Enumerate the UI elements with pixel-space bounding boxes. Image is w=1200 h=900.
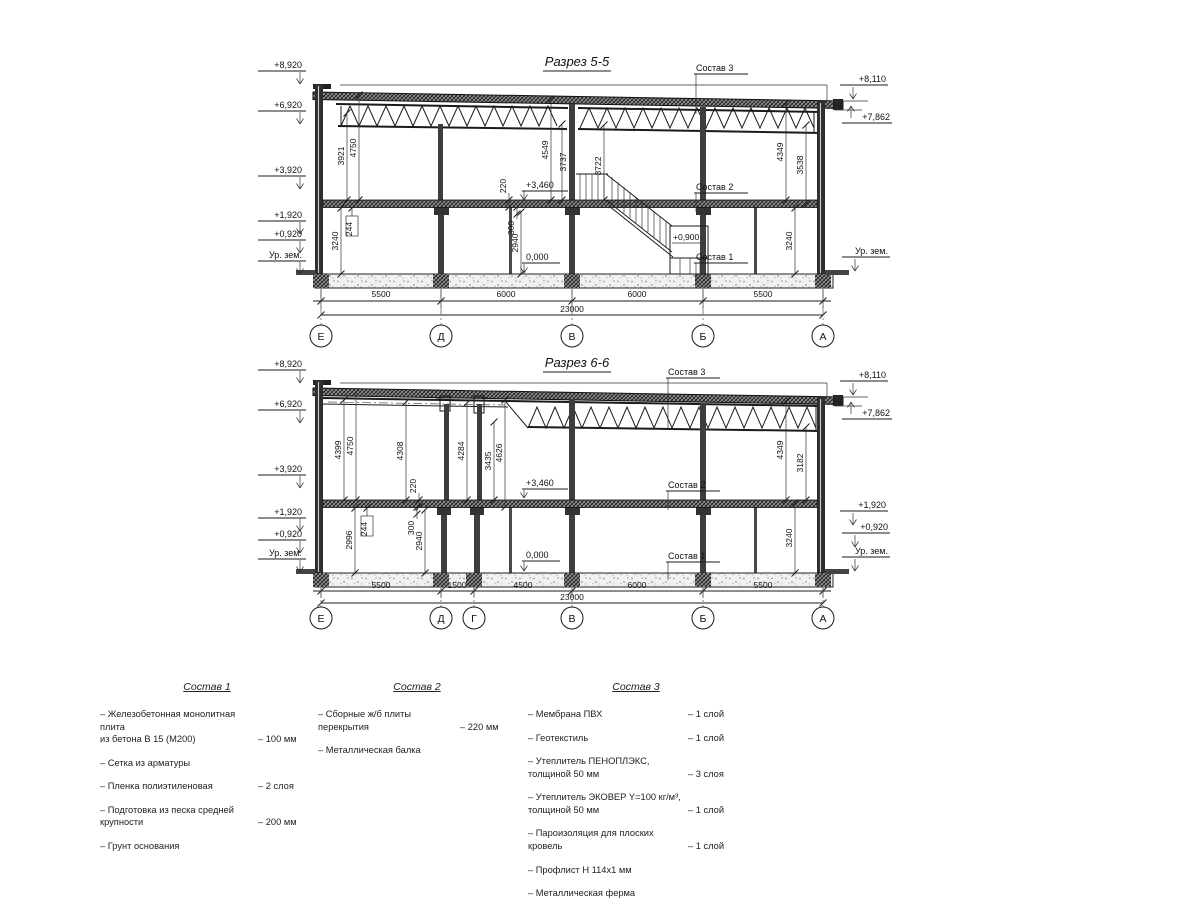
roof-truss-6-6 [505, 401, 822, 431]
axis-bubble: Б [700, 331, 707, 343]
column-axis-d [441, 507, 447, 573]
svg-text:4349: 4349 [775, 440, 785, 459]
column-axis-v [569, 104, 575, 274]
svg-text:220: 220 [408, 479, 418, 493]
svg-text:3240: 3240 [784, 528, 794, 547]
svg-text:3737: 3737 [558, 152, 568, 171]
svg-text:220: 220 [498, 179, 508, 193]
svg-text:4626: 4626 [494, 443, 504, 462]
svg-text:244: 244 [359, 522, 369, 536]
sections-drawing: Разрез 5-5 [0, 0, 1200, 900]
level-3460: +3,460 [521, 478, 569, 498]
roof-truss-5-5 [336, 104, 822, 133]
svg-text:4308: 4308 [395, 441, 405, 460]
svg-text:4284: 4284 [456, 441, 466, 460]
column-axis-d-upper [444, 404, 449, 500]
axis-bubble: В [568, 331, 575, 343]
svg-text:+7,862: +7,862 [862, 112, 890, 122]
svg-text:Состав 3: Состав 3 [696, 63, 733, 73]
elevation-marks-right-5-5: +8,110 +7,862 Ур. зем. [835, 74, 892, 271]
section-5-5-title: Разрез 5-5 [545, 54, 610, 69]
svg-text:6000: 6000 [497, 289, 516, 299]
svg-text:3538: 3538 [795, 155, 805, 174]
axis-bubble: Е [317, 331, 324, 343]
svg-text:Состав 1: Состав 1 [668, 551, 705, 561]
svg-text:4750: 4750 [348, 138, 358, 157]
svg-text:Ур. зем.: Ур. зем. [855, 546, 888, 556]
level-0000: 0,000 [521, 252, 561, 273]
svg-text:3921: 3921 [336, 146, 346, 165]
axis-bubble: В [568, 613, 575, 625]
walls-6-6 [315, 380, 825, 573]
svg-text:3182: 3182 [795, 453, 805, 472]
svg-text:300: 300 [506, 221, 516, 235]
column-axis-g-upper [477, 404, 482, 500]
svg-text:+8,920: +8,920 [274, 60, 302, 70]
floor-slab-5-5 [323, 200, 817, 208]
svg-text:Состав 1: Состав 1 [696, 252, 733, 262]
svg-text:+0,920: +0,920 [274, 229, 302, 239]
axis-bubble: Д [437, 613, 444, 625]
svg-text:5500: 5500 [754, 580, 773, 590]
svg-text:Ур. зем.: Ур. зем. [855, 246, 888, 256]
svg-text:+8,920: +8,920 [274, 359, 302, 369]
svg-text:5500: 5500 [754, 289, 773, 299]
floor-slab-6-6 [323, 500, 817, 508]
partition-post [754, 207, 757, 274]
svg-text:+1,920: +1,920 [274, 210, 302, 220]
svg-text:1500: 1500 [448, 580, 467, 590]
staircase: +0,900 [576, 174, 708, 274]
drawing-sheet: Разрез 5-5 [0, 0, 1200, 900]
stair-landing-level: +0,900 [673, 232, 700, 242]
svg-text:2940: 2940 [510, 233, 520, 252]
roof-5-5 [313, 84, 843, 110]
svg-text:4349: 4349 [775, 142, 785, 161]
svg-text:4399: 4399 [333, 440, 343, 459]
svg-text:+6,920: +6,920 [274, 399, 302, 409]
svg-text:0,000: 0,000 [526, 550, 549, 560]
svg-text:Состав 2: Состав 2 [668, 480, 705, 490]
svg-text:5500: 5500 [372, 289, 391, 299]
svg-text:244: 244 [344, 222, 354, 236]
svg-text:3722: 3722 [593, 156, 603, 175]
svg-text:+0,920: +0,920 [274, 529, 302, 539]
level-3460: +3,460 [521, 180, 569, 200]
svg-text:+1,920: +1,920 [274, 507, 302, 517]
section-6-6-title: Разрез 6-6 [545, 355, 610, 370]
axis-bubbles-6-6: Е Д Г В Б А [310, 588, 834, 629]
elevation-marks-left-5-5: +8,920 +6,920 +3,920 +1,920 +0,920 Ур. з… [258, 60, 306, 274]
svg-text:6000: 6000 [628, 580, 647, 590]
axis-bubble: Е [317, 613, 324, 625]
svg-text:+3,920: +3,920 [274, 464, 302, 474]
axis-bubble: Д [437, 331, 444, 343]
svg-text:+3,920: +3,920 [274, 165, 302, 175]
svg-text:+3,460: +3,460 [526, 180, 554, 190]
svg-text:5500: 5500 [372, 580, 391, 590]
svg-text:+7,862: +7,862 [862, 408, 890, 418]
column-axis-g [474, 507, 480, 573]
svg-text:+1,920: +1,920 [858, 500, 886, 510]
section-5-5: Разрез 5-5 [258, 54, 892, 347]
svg-text:2996: 2996 [344, 530, 354, 549]
svg-text:4750: 4750 [345, 436, 355, 455]
svg-text:300: 300 [406, 521, 416, 535]
axis-bubble: Б [700, 613, 707, 625]
column-axis-d [438, 207, 444, 274]
axis-bubble: Г [471, 613, 477, 625]
partition-post [754, 507, 757, 573]
section-6-6: Разрез 6-6 [258, 355, 892, 629]
svg-text:4500: 4500 [514, 580, 533, 590]
svg-text:3240: 3240 [784, 231, 794, 250]
svg-text:3435: 3435 [483, 451, 493, 470]
partition-post [509, 507, 512, 573]
svg-text:4549: 4549 [540, 140, 550, 159]
svg-text:Ур. зем.: Ур. зем. [269, 548, 302, 558]
svg-text:+6,920: +6,920 [274, 100, 302, 110]
svg-text:+3,460: +3,460 [526, 478, 554, 488]
axis-bubble: А [819, 613, 826, 625]
svg-text:0,000: 0,000 [526, 252, 549, 262]
svg-text:Ур. зем.: Ур. зем. [269, 250, 302, 260]
elevation-marks-left-6-6: +8,920 +6,920 +3,920 +1,920 +0,920 Ур. з… [258, 359, 306, 572]
svg-text:3240: 3240 [330, 231, 340, 250]
svg-text:+8,110: +8,110 [859, 370, 886, 380]
column-axis-v [569, 399, 575, 573]
column-axis-d-upper [438, 124, 443, 200]
svg-text:+0,920: +0,920 [860, 522, 888, 532]
svg-text:Состав 2: Состав 2 [696, 182, 733, 192]
axis-bubble: А [819, 331, 826, 343]
svg-text:+8,110: +8,110 [859, 74, 886, 84]
level-0000: 0,000 [521, 550, 561, 571]
elevation-marks-right-6-6: +8,110 +7,862 +1,920 +0,920 Ур. зем. [835, 370, 892, 571]
svg-text:6000: 6000 [628, 289, 647, 299]
svg-text:Состав 3: Состав 3 [668, 367, 705, 377]
